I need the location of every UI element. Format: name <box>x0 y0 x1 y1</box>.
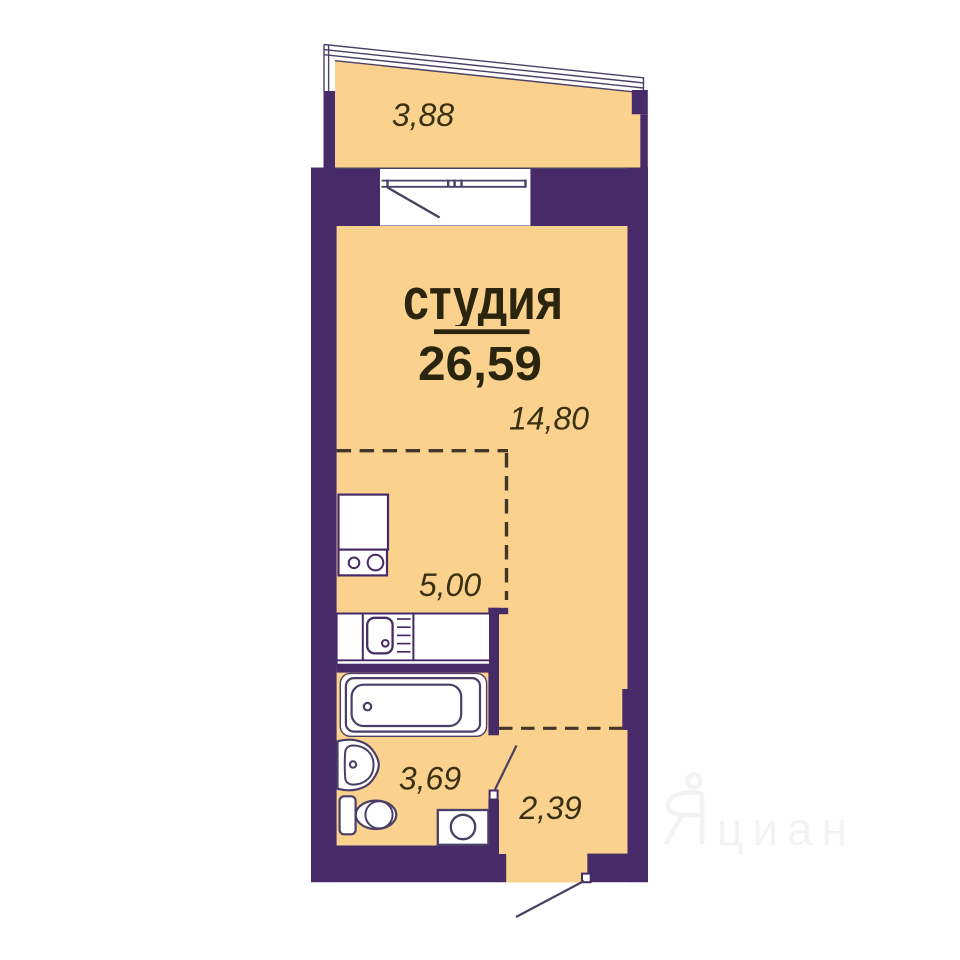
svg-text:3,88: 3,88 <box>392 97 454 133</box>
svg-text:2,39: 2,39 <box>518 790 581 826</box>
svg-text:студия: студия <box>403 267 563 332</box>
svg-text:циан: циан <box>717 803 856 855</box>
svg-text:5,00: 5,00 <box>419 567 481 603</box>
svg-text:3,69: 3,69 <box>399 760 461 796</box>
svg-text:14,80: 14,80 <box>509 400 589 436</box>
svg-text:26,59: 26,59 <box>418 338 542 391</box>
